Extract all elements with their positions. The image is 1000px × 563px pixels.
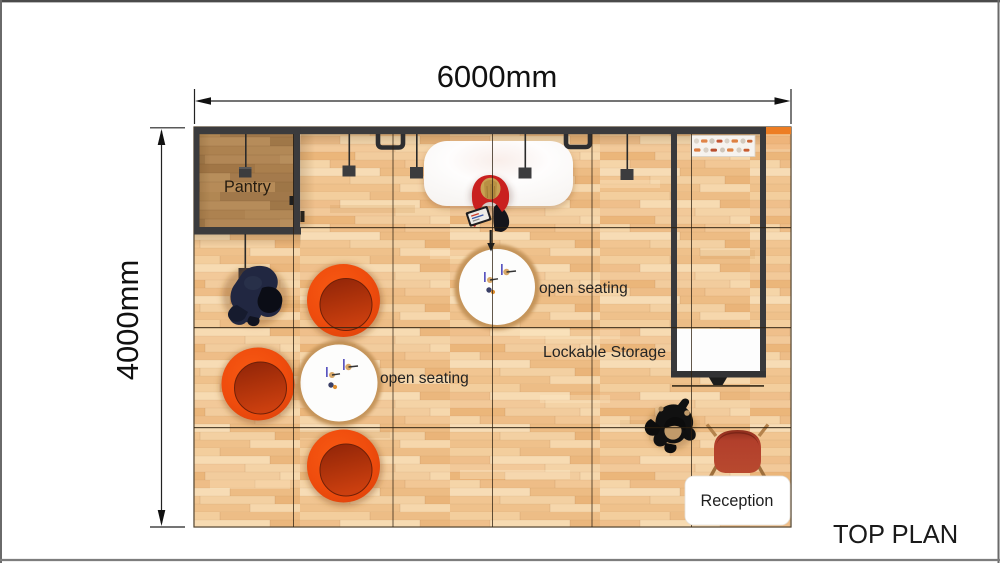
svg-text:4000mm: 4000mm (110, 260, 145, 381)
svg-text:Reception: Reception (701, 492, 774, 510)
svg-text:open seating: open seating (539, 280, 628, 297)
svg-text:Pantry: Pantry (224, 178, 272, 196)
svg-text:open seating: open seating (380, 370, 469, 387)
svg-text:TOP PLAN: TOP PLAN (833, 521, 958, 549)
svg-text:Lockable Storage: Lockable Storage (543, 344, 666, 361)
svg-text:6000mm: 6000mm (437, 59, 558, 94)
